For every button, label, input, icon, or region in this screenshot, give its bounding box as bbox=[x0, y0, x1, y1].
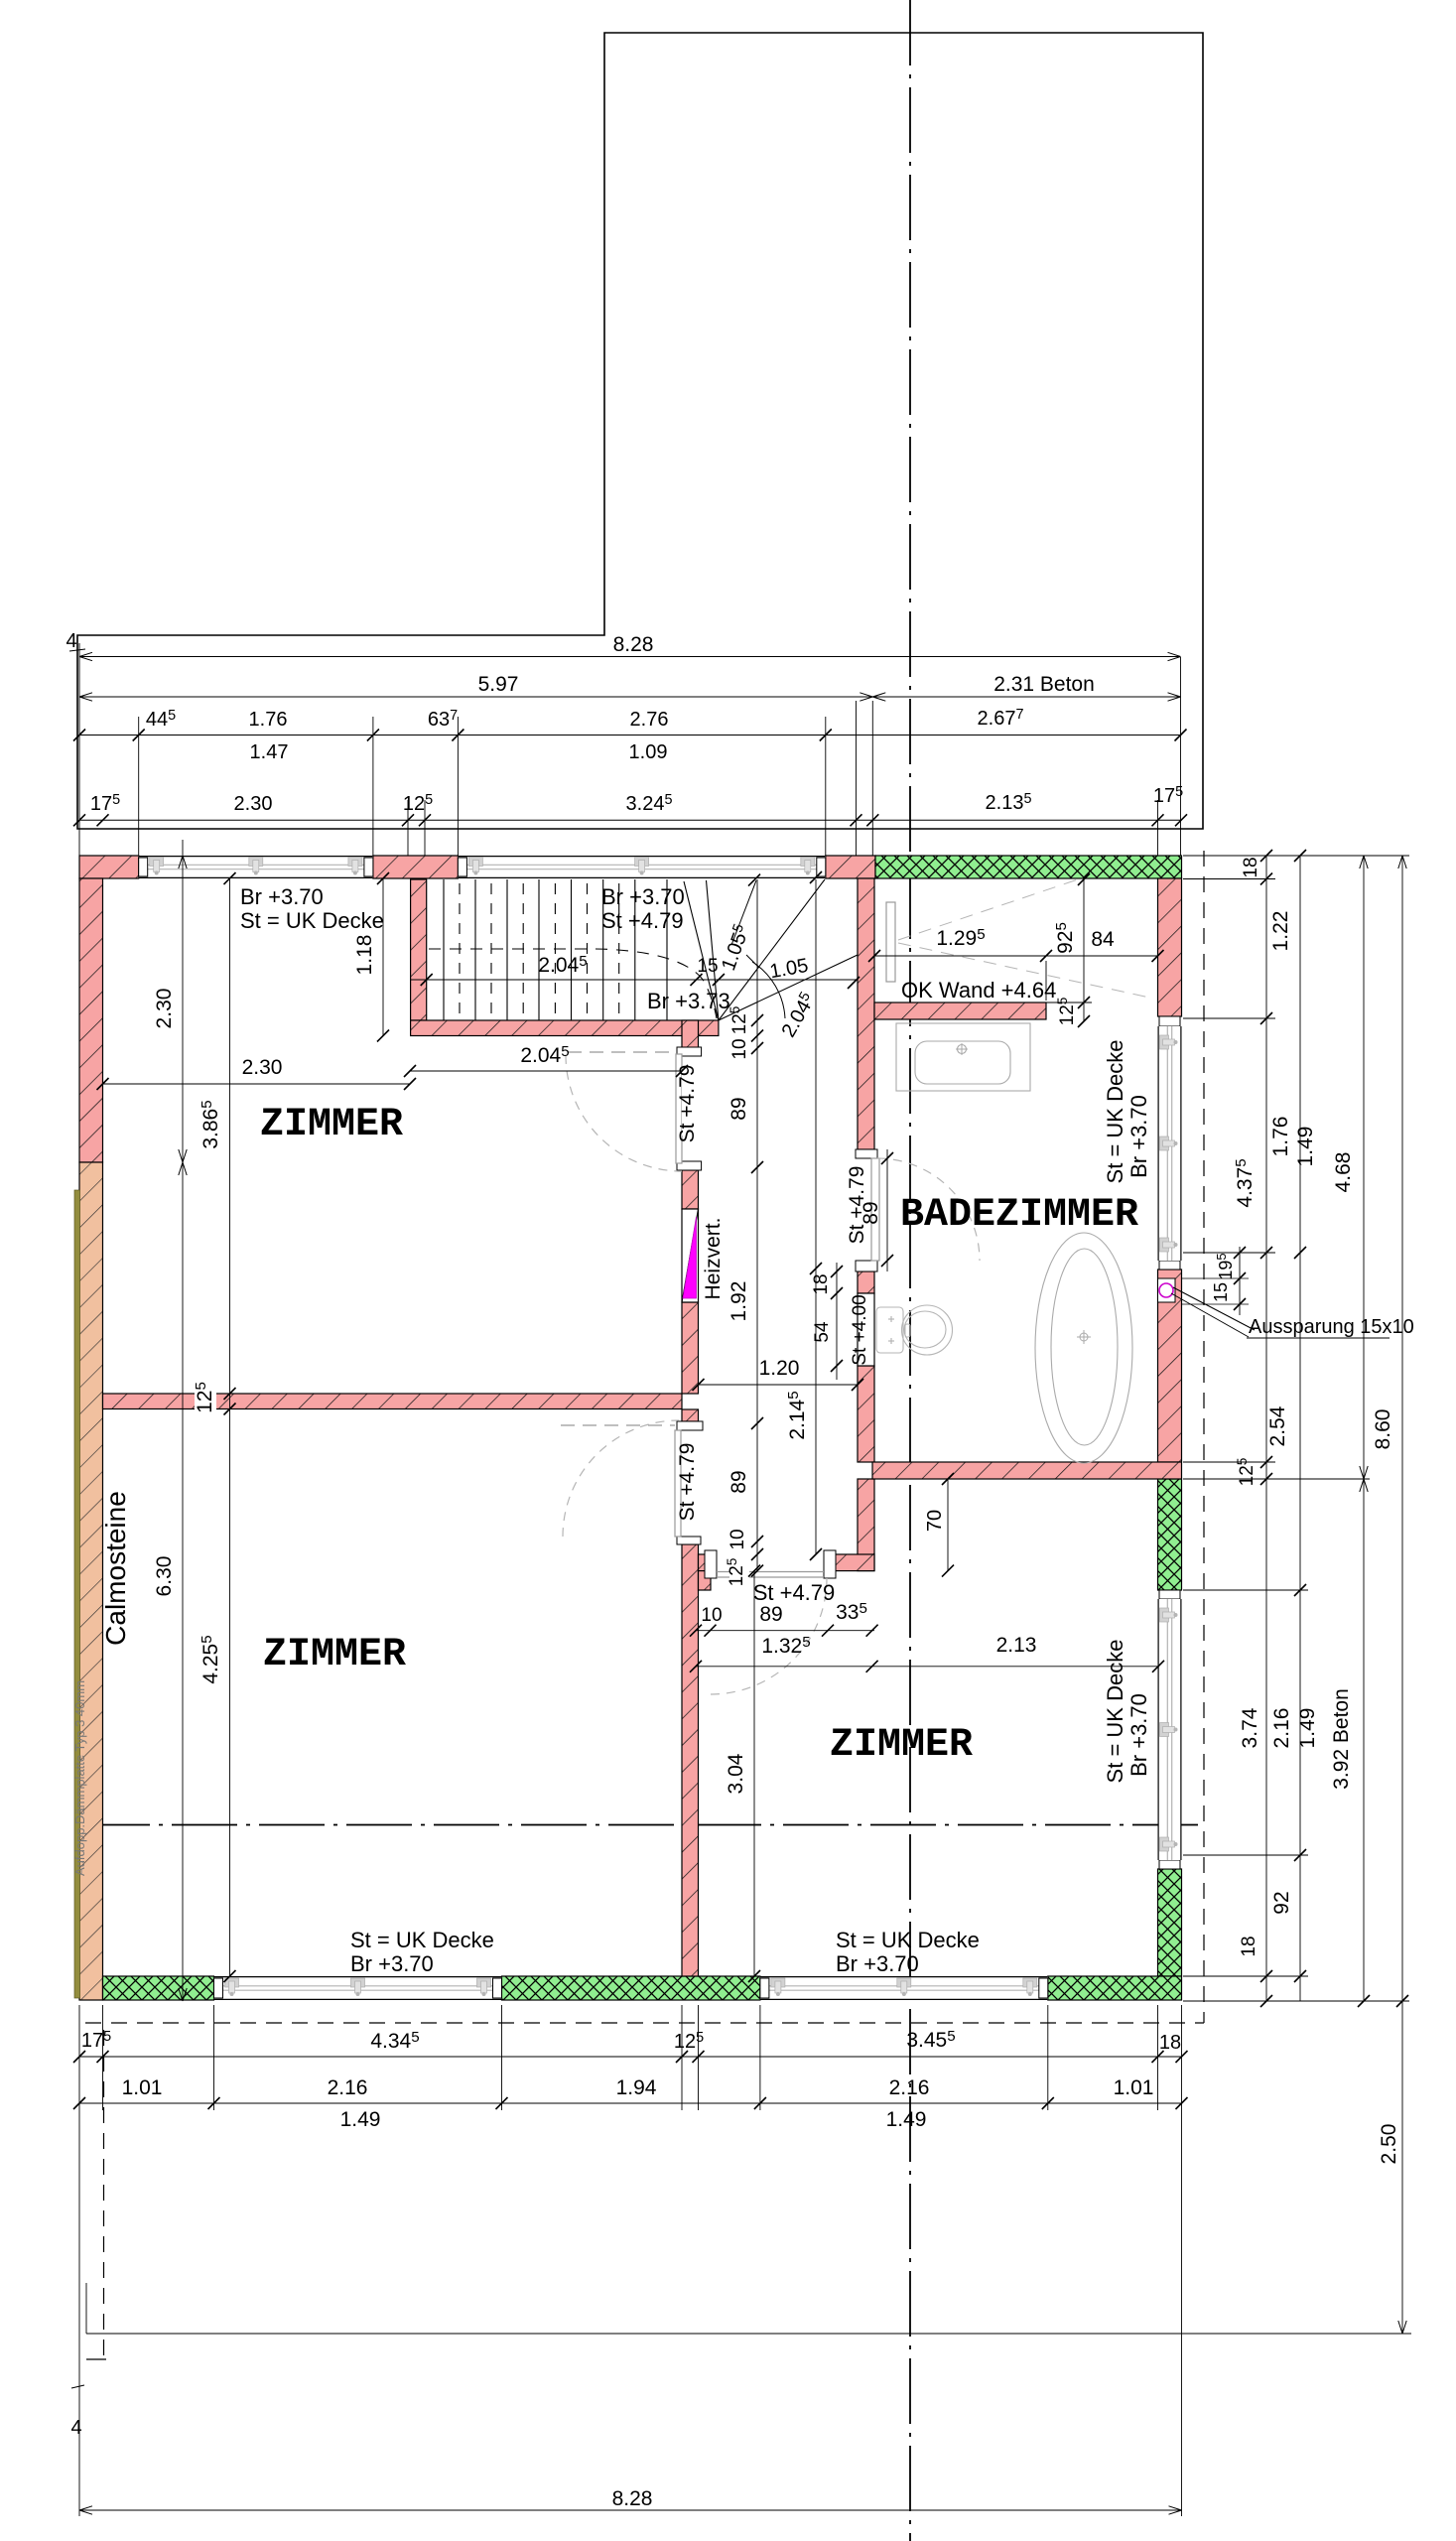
svg-text:OK Wand +4.64: OK Wand +4.64 bbox=[901, 978, 1056, 1003]
svg-text:1.01: 1.01 bbox=[1114, 2076, 1154, 2099]
svg-text:Aussparung 15x10: Aussparung 15x10 bbox=[1249, 1316, 1414, 1338]
svg-text:1.94: 1.94 bbox=[616, 2076, 657, 2099]
svg-text:Calmosteine: Calmosteine bbox=[100, 1491, 131, 1646]
svg-text:1.49: 1.49 bbox=[1296, 1708, 1319, 1749]
svg-text:2.16: 2.16 bbox=[889, 2076, 930, 2099]
svg-text:BADEZIMMER: BADEZIMMER bbox=[900, 1193, 1138, 1238]
svg-text:18: 18 bbox=[1159, 2032, 1181, 2054]
svg-text:1.76: 1.76 bbox=[1269, 1117, 1292, 1157]
svg-text:St +4.79: St +4.79 bbox=[753, 1580, 836, 1605]
svg-text:2.13: 2.13 bbox=[996, 1634, 1037, 1657]
svg-text:Br +3.70: Br +3.70 bbox=[601, 884, 685, 909]
svg-text:St = UK Decke: St = UK Decke bbox=[1103, 1040, 1127, 1184]
svg-text:Br +3.70: Br +3.70 bbox=[836, 1951, 919, 1976]
svg-text:15: 15 bbox=[1211, 1282, 1231, 1302]
svg-text:2.30: 2.30 bbox=[153, 989, 176, 1029]
svg-text:2.76: 2.76 bbox=[630, 709, 669, 731]
svg-text:70: 70 bbox=[924, 1510, 946, 1532]
svg-text:2.16: 2.16 bbox=[1270, 1708, 1293, 1749]
svg-text:2.31 Beton: 2.31 Beton bbox=[993, 673, 1095, 696]
svg-text:1.22: 1.22 bbox=[1269, 911, 1292, 952]
svg-text:3.74: 3.74 bbox=[1239, 1707, 1261, 1748]
svg-text:18: 18 bbox=[1241, 857, 1261, 877]
svg-text:St = UK Decke: St = UK Decke bbox=[836, 1928, 980, 1952]
svg-text:3.92 Beton: 3.92 Beton bbox=[1330, 1688, 1353, 1790]
svg-text:2.30: 2.30 bbox=[234, 793, 273, 815]
svg-text:89: 89 bbox=[860, 1201, 882, 1224]
svg-text:St = UK Decke: St = UK Decke bbox=[240, 908, 384, 933]
svg-text:54: 54 bbox=[812, 1321, 833, 1343]
svg-text:2.50: 2.50 bbox=[1378, 2124, 1400, 2165]
svg-text:Br +3.70: Br +3.70 bbox=[350, 1951, 434, 1976]
svg-text:ZIMMER: ZIMMER bbox=[263, 1633, 406, 1677]
svg-text:10: 10 bbox=[728, 1529, 748, 1549]
svg-text:St = UK Decke: St = UK Decke bbox=[1103, 1640, 1127, 1784]
svg-text:Aufdopp.Dämmplatte Typ 3 40mm: Aufdopp.Dämmplatte Typ 3 40mm bbox=[72, 1680, 87, 1876]
svg-text:1.01: 1.01 bbox=[122, 2076, 163, 2099]
svg-text:1.20: 1.20 bbox=[759, 1357, 800, 1380]
svg-text:18: 18 bbox=[1239, 1936, 1259, 1956]
svg-text:1.49: 1.49 bbox=[1294, 1127, 1317, 1167]
svg-text:1.47: 1.47 bbox=[250, 741, 289, 763]
svg-text:1.18: 1.18 bbox=[353, 935, 376, 976]
svg-text:2.16: 2.16 bbox=[328, 2076, 368, 2099]
svg-text:8.28: 8.28 bbox=[612, 2487, 653, 2510]
svg-text:ZIMMER: ZIMMER bbox=[260, 1103, 403, 1147]
svg-text:St +4.79: St +4.79 bbox=[676, 1065, 699, 1143]
svg-text:St +4.00: St +4.00 bbox=[850, 1294, 870, 1365]
svg-text:92: 92 bbox=[1270, 1891, 1293, 1914]
svg-text:84: 84 bbox=[1091, 928, 1115, 951]
svg-text:89: 89 bbox=[728, 1470, 750, 1493]
svg-text:St +4.79: St +4.79 bbox=[601, 908, 684, 933]
svg-text:ZIMMER: ZIMMER bbox=[830, 1723, 973, 1768]
svg-text:10: 10 bbox=[729, 1038, 750, 1059]
svg-text:4: 4 bbox=[70, 2417, 81, 2439]
svg-text:2.54: 2.54 bbox=[1266, 1405, 1289, 1446]
svg-text:89: 89 bbox=[728, 1097, 750, 1120]
svg-text:8.60: 8.60 bbox=[1372, 1409, 1394, 1450]
svg-text:1.76: 1.76 bbox=[249, 709, 288, 731]
svg-text:Br +3.70: Br +3.70 bbox=[1126, 1693, 1151, 1777]
svg-text:4: 4 bbox=[66, 630, 76, 652]
svg-text:St +4.79: St +4.79 bbox=[676, 1443, 699, 1522]
svg-text:1.92: 1.92 bbox=[728, 1281, 750, 1322]
svg-text:4.68: 4.68 bbox=[1332, 1152, 1355, 1193]
svg-text:1.49: 1.49 bbox=[886, 2108, 927, 2131]
svg-text:Heizvert.: Heizvert. bbox=[702, 1218, 725, 1300]
svg-text:Br +3.70: Br +3.70 bbox=[1126, 1095, 1151, 1178]
svg-text:Br +3.73: Br +3.73 bbox=[647, 989, 730, 1013]
svg-text:St = UK Decke: St = UK Decke bbox=[350, 1928, 494, 1952]
svg-text:1.09: 1.09 bbox=[629, 741, 668, 763]
svg-text:6.30: 6.30 bbox=[153, 1556, 176, 1597]
svg-text:18: 18 bbox=[811, 1273, 832, 1294]
svg-text:5.97: 5.97 bbox=[478, 673, 519, 696]
svg-text:8.28: 8.28 bbox=[613, 633, 654, 656]
svg-text:15: 15 bbox=[697, 956, 718, 977]
svg-text:Br +3.70: Br +3.70 bbox=[240, 884, 324, 909]
svg-text:2.30: 2.30 bbox=[242, 1056, 283, 1079]
svg-text:89: 89 bbox=[759, 1603, 782, 1626]
svg-text:3.04: 3.04 bbox=[725, 1753, 747, 1794]
svg-text:1.49: 1.49 bbox=[340, 2108, 381, 2131]
svg-text:10: 10 bbox=[701, 1605, 722, 1626]
